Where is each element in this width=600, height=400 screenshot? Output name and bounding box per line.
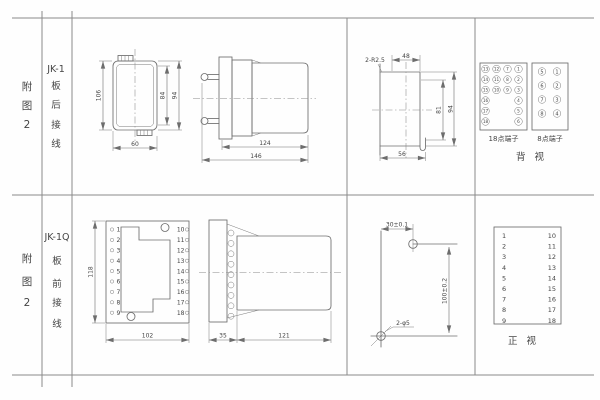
drawing-svg: 附 图 2 JK-1 板 后 接 线 附 图 2 JK-1Q 板 前 接 线 xyxy=(0,0,600,400)
terminal-number: 16 xyxy=(177,289,185,296)
dim-body-124: 124 xyxy=(259,140,271,147)
terminal-number: 1 xyxy=(502,232,506,240)
fig-label-char: 附 xyxy=(22,252,33,265)
jk1-side-view: 124 146 xyxy=(193,57,316,163)
terminal-number: 17 xyxy=(483,109,489,114)
dim-30: 30±0.1 xyxy=(386,222,408,229)
terminal-number: 17 xyxy=(548,306,556,314)
dim-94: 94 xyxy=(448,105,455,113)
wiring-label-char: 板 xyxy=(51,80,61,92)
terminal-number: 8 xyxy=(502,306,506,314)
row2-labels: 附 图 2 JK-1Q 板 前 接 线 xyxy=(22,232,70,330)
terminal-number: 8 xyxy=(540,111,543,117)
terminal-number: 18 xyxy=(483,119,489,124)
wiring-label-char: 线 xyxy=(52,318,62,330)
terminal-number: 2 xyxy=(555,83,558,89)
terminal-number: 8 xyxy=(506,77,509,82)
terminal-number: 10 xyxy=(177,227,185,234)
terminal-number: 10 xyxy=(548,232,556,240)
jk1q-front-view: 1 2 3 4 5 6 7 8 9 10 11 12 13 14 15 16 1… xyxy=(88,221,190,343)
model-label: JK-1 xyxy=(46,64,65,75)
terminal-number: 5 xyxy=(517,109,520,114)
dim-top-48: 48 xyxy=(402,53,410,60)
wiring-label-char: 接 xyxy=(52,297,62,309)
jk1-rear-terminal-view: 13 12 7 1 14 11 8 2 15 10 9 3 16 4 17 5 … xyxy=(480,63,568,163)
terminal-number: 15 xyxy=(483,88,489,93)
terminal-number: 8 xyxy=(117,300,121,307)
terminal-number: 11 xyxy=(177,237,185,244)
terminal-number: 1 xyxy=(117,227,121,234)
dim-total-146: 146 xyxy=(250,153,262,160)
terminal-number: 2 xyxy=(117,237,121,244)
terminal-number: 7 xyxy=(117,289,121,296)
dim-width-56: 56 xyxy=(398,151,406,158)
wiring-label-char: 接 xyxy=(51,119,61,131)
wiring-label-char: 线 xyxy=(51,138,61,150)
appendix-sheet: 附 图 2 JK-1 板 后 接 线 附 图 2 JK-1Q 板 前 接 线 xyxy=(0,0,600,400)
terminal-number: 17 xyxy=(177,300,185,307)
front-view-label: 正视 xyxy=(508,335,545,347)
block18-label: 18点端子 xyxy=(489,134,519,143)
dim-width-102: 102 xyxy=(142,333,154,340)
terminal-number: 6 xyxy=(117,279,121,286)
terminal-number: 7 xyxy=(506,67,509,72)
terminal-number: 3 xyxy=(517,88,520,93)
wiring-label-char: 前 xyxy=(52,278,62,290)
fig-label-char: 2 xyxy=(24,297,31,309)
terminal-number: 14 xyxy=(177,268,185,275)
terminal-number: 9 xyxy=(502,317,506,325)
terminal-number: 3 xyxy=(502,253,506,261)
terminal-number: 9 xyxy=(117,310,121,317)
terminal-number: 5 xyxy=(117,268,121,275)
terminal-number: 3 xyxy=(117,248,121,255)
terminal-number: 18 xyxy=(548,317,556,325)
mounting-hole xyxy=(127,313,135,321)
radius-note-2-R2.5: 2-R2.5 xyxy=(365,57,385,64)
terminal-number: 11 xyxy=(548,243,556,251)
jk1-panel-cutout: 2-R2.5 48 81 94 56 xyxy=(365,53,457,161)
terminal-number: 13 xyxy=(548,264,556,272)
dim-inner-84: 84 xyxy=(160,92,167,100)
fig-label-char: 附 xyxy=(22,80,33,93)
terminal-number: 16 xyxy=(548,296,556,304)
terminal-number: 4 xyxy=(117,258,121,265)
dim-height-106: 106 xyxy=(96,90,103,102)
terminal-number: 12 xyxy=(548,253,556,261)
wiring-label-char: 板 xyxy=(52,255,62,267)
terminal-number: 1 xyxy=(555,69,558,75)
terminal-number: 15 xyxy=(177,279,185,286)
terminal-number: 6 xyxy=(517,119,520,124)
dim-body-121: 121 xyxy=(278,333,290,340)
terminal-number: 6 xyxy=(540,83,543,89)
jk1q-drill-plan: 30±0.1 100±0.2 2-φ5 xyxy=(371,222,457,348)
row1-labels: 附 图 2 JK-1 板 后 接 线 xyxy=(22,64,65,150)
terminal-number: 4 xyxy=(555,111,558,117)
terminal-number: 6 xyxy=(502,285,506,293)
terminal-number: 18 xyxy=(177,310,185,317)
terminal-number: 12 xyxy=(177,248,185,255)
terminal-number: 15 xyxy=(548,285,556,293)
fig-label-char: 2 xyxy=(24,119,31,131)
dim-width-60: 60 xyxy=(131,141,139,148)
terminal-number: 13 xyxy=(483,67,489,72)
terminal-number: 5 xyxy=(540,69,543,75)
dim-height-118: 118 xyxy=(88,266,95,278)
terminal-number: 11 xyxy=(494,77,500,82)
terminal-block-8 xyxy=(532,63,568,130)
dim-plate-35: 35 xyxy=(219,333,227,340)
mounting-hole xyxy=(161,224,169,232)
terminal-number: 1 xyxy=(517,67,520,72)
terminal-number: 16 xyxy=(483,98,489,103)
rear-view-label: 背视 xyxy=(516,151,553,163)
hole-note-2-phi5: 2-φ5 xyxy=(396,320,410,327)
jk1q-side-view: 35 121 xyxy=(199,220,341,343)
terminal-number: 2 xyxy=(517,77,520,82)
dim-81: 81 xyxy=(436,106,443,114)
terminal-number: 5 xyxy=(502,274,506,282)
terminal-number: 9 xyxy=(506,88,509,93)
terminal-number: 7 xyxy=(502,296,506,304)
terminal-number: 3 xyxy=(555,97,558,103)
terminal-number: 2 xyxy=(502,243,506,251)
jk1-front-view: 106 84 94 60 xyxy=(96,49,183,151)
terminal-number: 13 xyxy=(177,258,185,265)
jk1q-front-terminal-table: 1 2 3 4 5 6 7 8 9 10 11 12 13 14 15 16 1… xyxy=(494,227,561,347)
wiring-label-char: 后 xyxy=(51,100,61,111)
terminal-number: 10 xyxy=(494,88,500,93)
terminal-number: 4 xyxy=(517,98,520,103)
terminal-number: 4 xyxy=(502,264,506,272)
fig-label-char: 图 xyxy=(22,100,33,112)
model-label: JK-1Q xyxy=(44,232,70,243)
dim-outer-94: 94 xyxy=(172,92,179,100)
terminal-number: 12 xyxy=(494,67,500,72)
terminal-number: 14 xyxy=(548,274,556,282)
block8-label: 8点端子 xyxy=(537,134,562,143)
terminal-number: 7 xyxy=(540,97,543,103)
fig-label-char: 图 xyxy=(22,276,33,288)
terminal-number: 14 xyxy=(483,77,489,82)
dim-100: 100±0.2 xyxy=(442,278,449,304)
